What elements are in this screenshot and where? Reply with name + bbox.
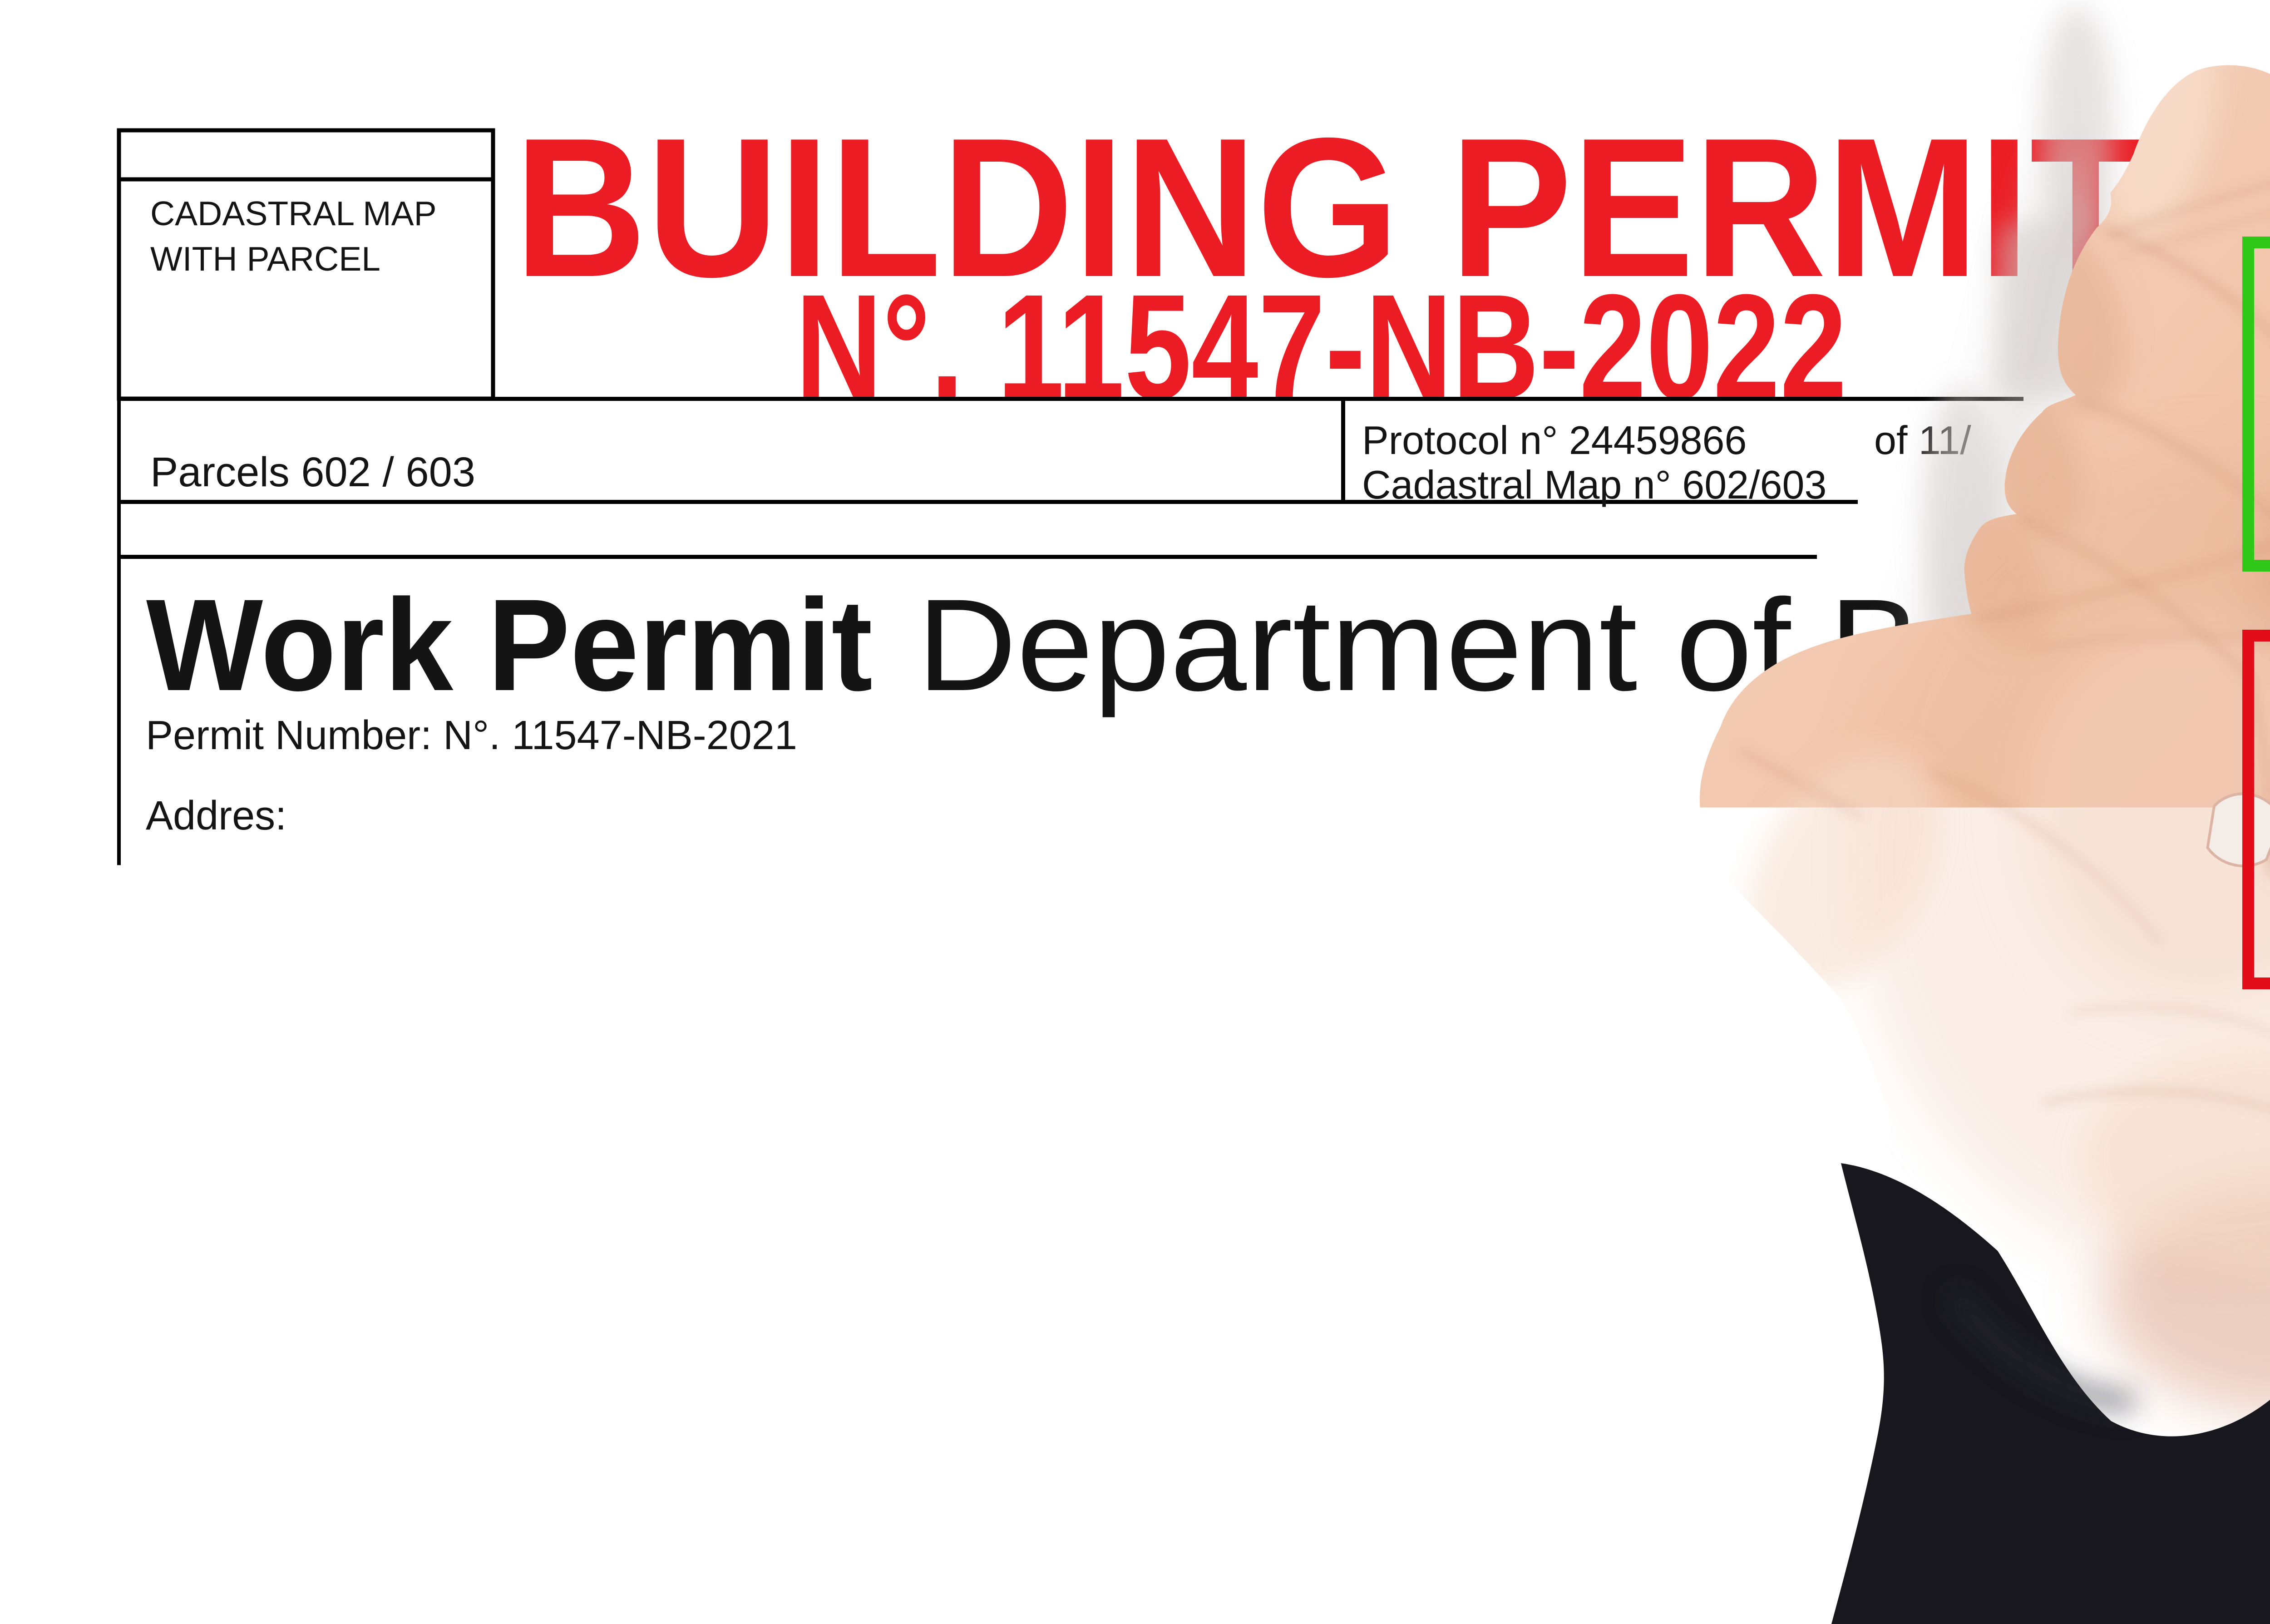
svg-text:stairwell: stairwell [1439, 1421, 1479, 1549]
svg-text:CADASTRAL MAP: CADASTRAL MAP [150, 194, 437, 232]
svg-text:Parcels 602 / 603: Parcels 602 / 603 [150, 449, 475, 495]
svg-text:Permit Number: N°. 11547-NB-20: Permit Number: N°. 11547-NB-2021 [146, 713, 797, 758]
svg-text:380: 380 [1049, 1427, 1110, 1467]
svg-text:03: 03 [617, 1354, 666, 1402]
svg-text:360: 360 [1802, 1380, 1863, 1421]
svg-text:01: 01 [398, 1459, 447, 1508]
svg-text:Description of Work: New Build: Description of Work: New Building [146, 865, 763, 910]
svg-text:350: 350 [1040, 874, 1100, 915]
svg-text:Business:: Business: [146, 997, 323, 1042]
svg-text:Protocol n° 24459866: Protocol n° 24459866 [1362, 418, 1747, 463]
svg-text:01: 01 [624, 1459, 673, 1508]
svg-text:Part. 701: Part. 701 [424, 1151, 582, 1195]
svg-text:02: 02 [507, 1448, 556, 1496]
svg-text:Part. 602: Part. 602 [560, 1516, 737, 1565]
svg-text:Cadastral Map n° 602/603: Cadastral Map n° 602/603 [1362, 462, 1826, 507]
svg-text:255: 255 [920, 1372, 960, 1433]
svg-text:WITH PARCEL: WITH PARCEL [150, 240, 380, 278]
svg-text:N°. 11547-NB-2022: N°. 11547-NB-2022 [795, 263, 1847, 430]
svg-text:Issued to:: Issued to: [146, 933, 323, 978]
svg-text:Part. 603: Part. 603 [334, 1516, 511, 1565]
svg-text:hallway: hallway [1606, 1222, 1643, 1334]
svg-text:GROUND FLOOR: GROUND FLOOR [285, 1083, 723, 1143]
svg-text:hallway: hallway [1272, 1215, 1309, 1328]
svg-text:Bedroom: Bedroom [970, 1022, 1151, 1072]
svg-text:Work Permit: Work Permit [146, 572, 873, 718]
svg-text:03: 03 [367, 1354, 416, 1402]
svg-text:Addres:: Addres: [146, 793, 286, 839]
svg-text:255: 255 [1678, 1621, 1738, 1624]
svg-text:Bedroom: Bedroom [969, 1383, 1150, 1433]
svg-text:bathroom: bathroom [1659, 999, 1692, 1121]
svg-text:Bedroom: Bedroom [1725, 1325, 1905, 1375]
svg-text:02: 02 [286, 1525, 334, 1574]
svg-text:490: 490 [920, 1041, 960, 1101]
svg-text:closet: closet [1401, 1195, 1438, 1283]
